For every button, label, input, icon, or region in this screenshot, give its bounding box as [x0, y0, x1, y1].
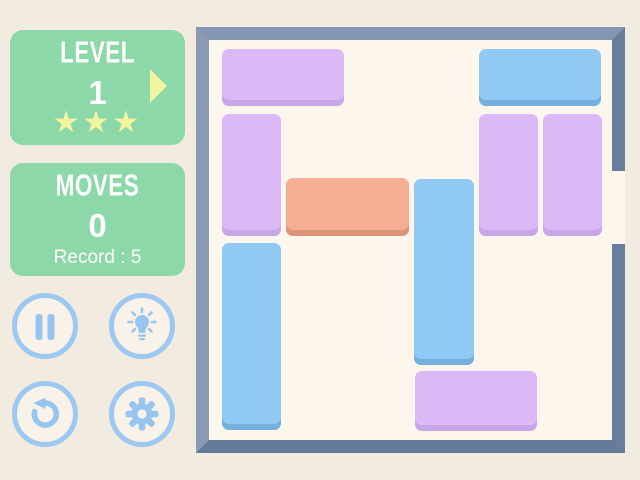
puzzle-board: [196, 27, 625, 453]
puzzle-block-purple[interactable]: [543, 114, 602, 236]
lightbulb-icon: [123, 307, 161, 345]
puzzle-block-blue[interactable]: [414, 179, 474, 365]
puzzle-block-purple[interactable]: [415, 371, 537, 431]
puzzle-block-purple[interactable]: [479, 114, 538, 236]
restart-button[interactable]: [12, 381, 78, 447]
moves-panel: MOVES 0 Record : 5: [10, 163, 185, 276]
gear-icon: [123, 395, 161, 433]
moves-title: MOVES: [10, 172, 185, 201]
hint-button[interactable]: [109, 293, 175, 359]
settings-button[interactable]: [109, 381, 175, 447]
star-icon: ★★★: [53, 106, 143, 139]
puzzle-block-blue[interactable]: [479, 49, 601, 106]
record-label: Record : 5: [10, 247, 185, 269]
moves-value: 0: [10, 207, 185, 245]
pause-button[interactable]: [12, 293, 78, 359]
pause-icon: [26, 307, 64, 345]
next-level-arrow-icon[interactable]: [150, 69, 167, 103]
restart-icon: [26, 395, 64, 433]
puzzle-block-blue[interactable]: [222, 243, 281, 430]
level-title: LEVEL: [10, 39, 185, 68]
game-screen: LEVEL 1 ★★★ MOVES 0 Record : 5: [0, 0, 640, 480]
exit-gap: [612, 171, 625, 244]
puzzle-block-purple[interactable]: [222, 49, 344, 106]
level-stars: ★★★: [10, 108, 185, 138]
key-block[interactable]: [286, 178, 409, 236]
puzzle-block-purple[interactable]: [222, 114, 281, 236]
level-panel: LEVEL 1 ★★★: [10, 30, 185, 145]
blocks-layer: [209, 40, 612, 440]
